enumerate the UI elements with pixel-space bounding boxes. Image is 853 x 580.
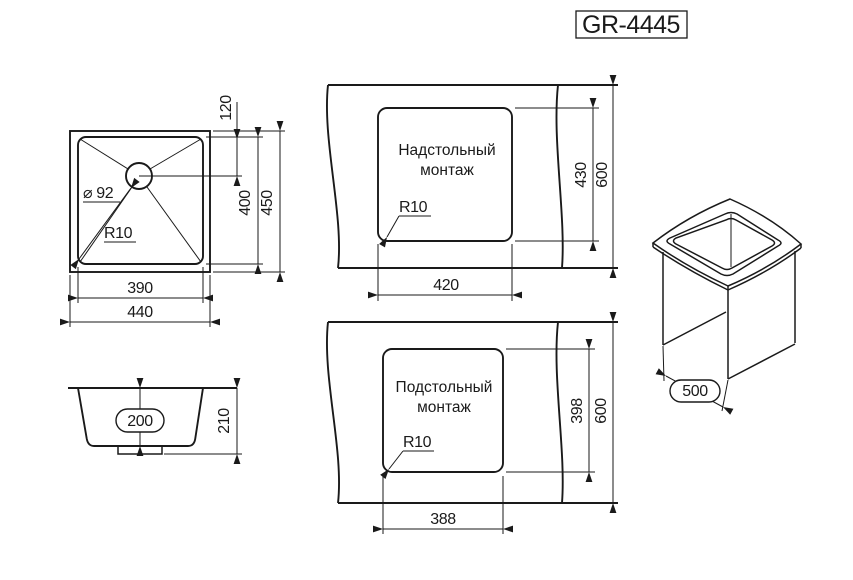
top-view: ⌀ 92 R10 120 400 450 390: [70, 95, 285, 327]
side-view: 200 210: [68, 388, 242, 454]
dim-cutout-width: 420: [378, 244, 512, 301]
title-block: GR-4445: [576, 11, 687, 39]
iso-view: 500: [653, 199, 801, 411]
technical-drawing-page: GR-4445 ⌀ 92 R10 120: [0, 0, 853, 580]
dim-inner-depth: 200: [116, 388, 164, 446]
iso-opening-inner: [674, 219, 775, 270]
dim-cutout-width: 388: [383, 476, 503, 534]
dim-600-label: 600: [593, 398, 610, 424]
dim-counter-height: 600: [593, 322, 613, 503]
sink-drawing-svg: GR-4445 ⌀ 92 R10 120: [0, 0, 853, 580]
iso-body: [663, 251, 795, 379]
dim-420-label: 420: [433, 277, 459, 294]
undermount-label-line1: Подстольный: [396, 379, 493, 396]
dim-cutout-height: 398: [506, 349, 595, 472]
model-title: GR-4445: [582, 11, 680, 39]
dim-inner-height: 400: [206, 137, 263, 264]
dim-cabinet-width: 500: [663, 346, 728, 411]
drain-diameter-label: ⌀ 92: [83, 185, 114, 202]
dim-drain-offset: 120: [139, 95, 242, 176]
corner-radius-label: R10: [104, 225, 133, 242]
dim-390-label: 390: [127, 280, 153, 297]
dim-outer-depth: 210: [164, 388, 242, 454]
dim-120-label: 120: [218, 95, 235, 121]
dim-430-label: 430: [573, 162, 590, 188]
dim-600-label: 600: [594, 162, 611, 188]
dim-400-label: 400: [237, 190, 254, 216]
dim-200-label: 200: [127, 413, 153, 430]
dim-210-label: 210: [216, 408, 233, 434]
corner-radius-label: R10: [399, 199, 428, 216]
iso-rim-outer: [653, 199, 801, 286]
dim-440-label: 440: [127, 304, 153, 321]
dim-388-label: 388: [430, 511, 456, 528]
counter-torn-edge-left: [327, 85, 339, 268]
dim-398-label: 398: [569, 398, 586, 424]
dim-450-label: 450: [259, 190, 276, 216]
dim-500-label: 500: [682, 383, 708, 400]
drain-stub: [118, 446, 162, 454]
iso-rim-thickness: [653, 243, 801, 290]
undermount-label-line2: монтаж: [417, 399, 471, 416]
counter-torn-edge-left: [327, 322, 339, 503]
undermount-view: Подстольный монтаж R10 398 600 388: [327, 322, 618, 534]
corner-radius-label: R10: [403, 434, 432, 451]
overmount-label-line1: Надстольный: [398, 142, 495, 159]
overmount-view: Надстольный монтаж R10 430 600 420: [327, 85, 618, 301]
overmount-label-line2: монтаж: [420, 162, 474, 179]
